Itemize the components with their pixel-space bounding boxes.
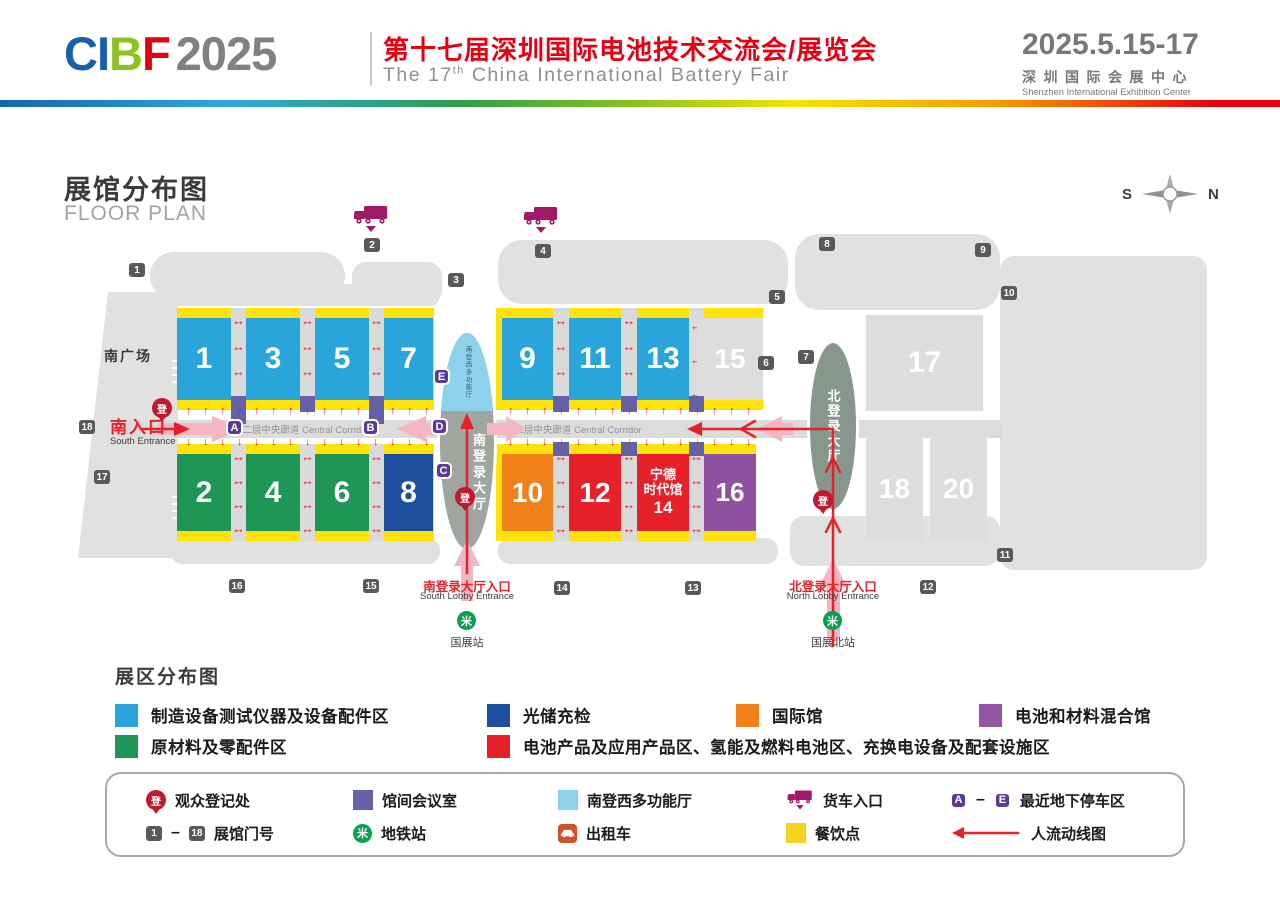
zone-swatch — [487, 735, 510, 758]
hall-number: 18 — [879, 473, 910, 505]
hall-number: 14 — [654, 498, 673, 518]
truck-entrance-icon — [523, 205, 559, 235]
fair-title-en-part: The 17 — [383, 64, 453, 86]
parking-badge-b: B — [362, 419, 379, 436]
logo-year: 2025 — [176, 27, 277, 80]
legend-dining: 餐饮点 — [786, 821, 860, 845]
venue-chinese: 深圳国际会展中心 — [1022, 67, 1214, 87]
gate-badge-9: 9 — [975, 243, 991, 257]
parking-letter: B — [367, 422, 375, 434]
legend-metro-station: 米 地铁站 — [353, 821, 426, 845]
dining-strip — [177, 308, 231, 318]
parking-letter: E — [438, 371, 445, 383]
legend-label: 人流动线图 — [1031, 823, 1106, 844]
gate-badge-18: 18 — [79, 420, 95, 434]
fair-title-english: The 17th China International Battery Fai… — [383, 64, 790, 87]
north-lobby-label: 北登录大厅 — [824, 389, 843, 464]
corridor-flow-arrow: ↑ — [593, 406, 599, 417]
legend-underground-parking: A – E 最近地下停车区 — [950, 788, 1125, 812]
corridor-flow-arrow: ↑ — [390, 406, 396, 417]
parking-letter: C — [440, 465, 448, 477]
corridor-flow-arrow: ↓ — [356, 437, 362, 448]
dining-strip — [637, 531, 689, 541]
plan-title-english: FLOOR PLAN — [64, 202, 207, 226]
corridor-flow-arrow: ↑ — [627, 406, 633, 417]
legend-truck-entrance: 货车入口 — [786, 788, 883, 812]
legend-gate-numbers: 1 – 18 展馆门号 — [146, 821, 274, 845]
hall-number: 10 — [512, 477, 543, 509]
hall-aisle: ↔↔↔↔ — [689, 444, 704, 541]
hall-6: 6 — [315, 454, 369, 531]
corridor-flow-arrow: ↓ — [746, 437, 752, 448]
legend-label: 南登西多功能厅 — [587, 790, 692, 811]
hall-14-name-line2: 时代馆 — [643, 483, 682, 498]
gate-badge-10: 10 — [1001, 286, 1017, 300]
parking-badge-a: A — [950, 792, 967, 809]
corridor-flow-arrow: ↑ — [729, 406, 735, 417]
compass-star-icon — [1138, 172, 1202, 216]
corridor-flow-arrow: ↓ — [695, 437, 701, 448]
hall-4: 4 — [246, 454, 300, 531]
corridor-flow-arrow: ↓ — [220, 437, 226, 448]
corridor-flow-arrow: ↓ — [729, 437, 735, 448]
parking-badge-e: E — [994, 792, 1011, 809]
corridor-flow-arrow: ↓ — [525, 437, 531, 448]
parking-badge-c: C — [435, 462, 452, 479]
legend-label: 最近地下停车区 — [1020, 790, 1125, 811]
parking-letter: D — [436, 421, 444, 433]
gate-badge-6: 6 — [758, 356, 774, 370]
zone-label: 光储充检 — [523, 703, 591, 727]
corridor-flow-arrow: ↑ — [678, 406, 684, 417]
registration-pin-icon: 登 — [813, 490, 833, 510]
registration-pin-icon: 登 — [146, 790, 166, 810]
hall-aisle: ↔↔↔↔ — [231, 444, 246, 541]
metro-glyph: 米 — [357, 825, 368, 841]
zone-swatch — [736, 704, 759, 727]
hall-number: 6 — [334, 476, 351, 510]
metro-station-icon: 米 — [353, 824, 372, 843]
corridor-flow-arrow: ↑ — [542, 406, 548, 417]
hall-17: 17 — [866, 315, 983, 411]
gate-badge-17: 17 — [94, 470, 110, 484]
legend-label: 观众登记处 — [175, 790, 250, 811]
corridor-flow-arrow: ↓ — [542, 437, 548, 448]
corridor-flow-arrow: ↓ — [322, 437, 328, 448]
hall-16: 16 — [704, 454, 756, 531]
zone-swatch — [115, 704, 138, 727]
corridor-flow-arrow: ↑ — [322, 406, 328, 417]
dining-strip — [637, 308, 689, 318]
dining-strip — [177, 531, 231, 541]
metro-glyph: 米 — [827, 613, 838, 629]
zone-legend-equipment: 制造设备测试仪器及设备配件区 — [115, 703, 389, 727]
corridor-flow-arrow: ↓ — [373, 437, 379, 448]
gate-badge-15: 15 — [363, 579, 379, 593]
venue-english: Shenzhen International Exhibition Center — [1022, 87, 1214, 97]
parking-letter: E — [999, 794, 1006, 806]
gate-badge-12: 12 — [920, 580, 936, 594]
corridor-flow-arrow: ↑ — [576, 406, 582, 417]
map-building-right — [1000, 256, 1207, 570]
compass-north-label: N — [1208, 186, 1219, 203]
metro-station-icon: 米 — [823, 611, 842, 630]
range-dash: – — [171, 824, 180, 842]
hall-number: 15 — [714, 343, 745, 375]
gate-badge-5: 5 — [769, 290, 785, 304]
legend-meeting-room: 馆间会议室 — [353, 788, 457, 812]
corridor-flow-arrow: ↓ — [271, 437, 277, 448]
corridor-flow-arrow: ↓ — [559, 437, 565, 448]
registration-glyph: 登 — [151, 793, 161, 808]
hall-11: 11 — [569, 318, 621, 400]
corridor-flow-arrow: ↑ — [695, 406, 701, 417]
gate-badge-16: 16 — [229, 579, 245, 593]
zone-legend-international: 国际馆 — [736, 703, 823, 727]
dining-strip — [502, 531, 553, 541]
hall-number: 2 — [196, 476, 213, 510]
hall-13: 13 — [637, 318, 689, 400]
south-entrance-label-cn: 南入口 — [110, 413, 167, 438]
corridor-flow-arrow: ↓ — [305, 437, 311, 448]
zone-label: 制造设备测试仪器及设备配件区 — [151, 703, 389, 727]
hall-7: 7 — [384, 318, 433, 400]
hall-aisle: ↔↔↔↔ — [300, 444, 315, 541]
corridor-flow-arrow: ↓ — [610, 437, 616, 448]
hall-10: 10 — [502, 454, 553, 531]
hall-aisle: ↔↔↔↔ — [621, 444, 637, 541]
gate-badge-2: 2 — [364, 238, 380, 252]
south-lobby-entrance-label-en: South Lobby Entrance — [420, 591, 514, 602]
corridor-flow-arrow: ↑ — [288, 406, 294, 417]
gate-badge-3: 3 — [448, 273, 464, 287]
hall-14-name-line1: 宁德 — [650, 468, 676, 483]
corridor-flow-arrow: ↑ — [271, 406, 277, 417]
hall-number: 7 — [400, 342, 417, 376]
hall-number: 9 — [519, 342, 536, 376]
registration-glyph: 登 — [460, 490, 470, 505]
hall-number: 3 — [265, 342, 282, 376]
hall-number: 1 — [196, 342, 213, 376]
taxi-icon — [558, 824, 577, 843]
hall-number: 5 — [334, 342, 351, 376]
corridor-flow-arrow: ↓ — [661, 437, 667, 448]
truck-entrance-icon — [353, 204, 389, 234]
corridor-flow-arrow: ↓ — [339, 437, 345, 448]
dining-swatch — [786, 823, 806, 843]
gate-badge-8: 8 — [819, 237, 835, 251]
hall-aisle: ↔↔↔↔ — [231, 308, 246, 410]
hall-aisle: ↔↔↔↔ — [621, 308, 637, 410]
corridor-flow-arrow: ↑ — [186, 406, 192, 417]
metro-station-south-label: 国展站 — [451, 634, 484, 650]
parking-badge-e: E — [433, 368, 450, 385]
hall-15: 15 — [697, 318, 763, 400]
hall-number: 11 — [579, 342, 611, 376]
corridor-flow-arrow: ↓ — [508, 437, 514, 448]
corridor-flow-arrow: ↑ — [305, 406, 311, 417]
dining-strip — [697, 308, 763, 318]
central-corridor-label: 二层中央廊道 Central Corridor — [514, 422, 641, 436]
corridor-flow-arrow: ↓ — [203, 437, 209, 448]
hall-number: 17 — [908, 346, 941, 380]
fair-title-en-sup: th — [453, 65, 465, 77]
legend-label: 地铁站 — [381, 823, 426, 844]
hall-2: 2 — [177, 454, 231, 531]
gate-badge-4: 4 — [535, 244, 551, 258]
logo-ci: CI — [64, 27, 109, 80]
dining-strip — [569, 531, 621, 541]
corridor-flow-arrow: ↓ — [644, 437, 650, 448]
truck-icon — [786, 789, 814, 811]
event-date-venue: 2025.5.15-17 深圳国际会展中心 Shenzhen Internati… — [1022, 28, 1214, 97]
corridor-flow-arrow: ↓ — [424, 437, 430, 448]
logo-b-battery-glyph: B — [109, 27, 142, 80]
corridor-flow-arrow: ↑ — [424, 406, 430, 417]
compass: S N — [1122, 172, 1219, 216]
legend-multifunction-hall: 南登西多功能厅 — [558, 788, 692, 812]
corridor-flow-arrow: ↑ — [661, 406, 667, 417]
zone-legend-battery-materials-mixed: 电池和材料混合馆 — [979, 703, 1151, 727]
legend-people-flow: 人流动线图 — [950, 821, 1106, 845]
zone-legend-solar-storage: 光储充检 — [487, 703, 591, 727]
gate-badge-18: 18 — [189, 826, 205, 841]
corridor-flow-arrow: ↓ — [390, 437, 396, 448]
dining-strip — [569, 308, 621, 318]
corridor-flow-arrow: ↑ — [237, 406, 243, 417]
hall-20: 20 — [930, 437, 987, 541]
south-lobby: 南登西多功能厅 南登录大厅 — [437, 330, 497, 552]
metro-station-north-label: 国展北站 — [811, 634, 855, 650]
rainbow-divider-bar — [0, 100, 1280, 107]
corridor-flow-arrow: ↑ — [525, 406, 531, 417]
fair-title-chinese: 第十七届深圳国际电池技术交流会/展览会 — [383, 30, 877, 67]
registration-pin-icon: 登 — [455, 487, 475, 507]
event-date: 2025.5.15-17 — [1022, 28, 1214, 62]
corridor-flow-arrow: ↑ — [508, 406, 514, 417]
dining-strip — [315, 531, 369, 541]
hall-3: 3 — [246, 318, 300, 400]
corridor-flow-arrow: ↑ — [712, 406, 718, 417]
hall-number: 13 — [646, 342, 679, 376]
hall-number: 8 — [400, 476, 417, 510]
hall-1: 1 — [177, 318, 231, 400]
map-background-shape — [498, 538, 778, 564]
corridor-flow-arrow: ↓ — [237, 437, 243, 448]
dining-strip — [315, 308, 369, 318]
corridor-flow-arrow: ↓ — [678, 437, 684, 448]
corridor-flow-arrow: ↑ — [407, 406, 413, 417]
metro-glyph: 米 — [461, 613, 472, 629]
hall-number: 20 — [943, 473, 974, 505]
south-plaza-label: 南广场 — [104, 346, 152, 366]
legend-label: 餐饮点 — [815, 823, 860, 844]
hall-aisle: ↔↔↔↔ — [553, 308, 569, 410]
hall-18: 18 — [866, 437, 923, 541]
fair-title-en-part2: China International Battery Fair — [465, 64, 790, 86]
cibf-logo: CIBF2025 — [64, 26, 276, 81]
zone-label: 电池产品及应用产品区、氢能及燃料电池区、充换电设备及配套设施区 — [523, 734, 1050, 758]
dining-strip — [704, 531, 756, 541]
hall-aisle: ↔↔↔↔ — [553, 444, 569, 541]
dining-strip — [502, 308, 553, 318]
gate-badge-14: 14 — [554, 581, 570, 595]
legend-label: 馆间会议室 — [382, 790, 457, 811]
metro-station-icon: 米 — [457, 611, 476, 630]
range-dash: – — [976, 791, 985, 809]
corridor-flow-arrow: ↑ — [644, 406, 650, 417]
meeting-room-swatch — [353, 790, 373, 810]
registration-glyph: 登 — [818, 493, 828, 508]
legend-label: 出租车 — [586, 823, 631, 844]
multifunction-hall-label: 南登西多功能厅 — [462, 346, 472, 399]
corridor-flow-arrow: ↓ — [593, 437, 599, 448]
map-background-shape — [170, 538, 440, 564]
corridor-flow-arrow: ↑ — [746, 406, 752, 417]
legend-registration: 登 观众登记处 — [146, 788, 250, 812]
floor-plan-page: CIBF2025 第十七届深圳国际电池技术交流会/展览会 The 17th Ch… — [0, 0, 1280, 904]
corridor-flow-arrow: ↓ — [254, 437, 260, 448]
dining-strip — [246, 308, 300, 318]
corridor-flow-arrow: ↓ — [712, 437, 718, 448]
corridor-flow-arrow: ↑ — [203, 406, 209, 417]
gate-badge-7: 7 — [798, 350, 814, 364]
multifunction-hall-swatch — [558, 790, 578, 810]
zone-swatch — [979, 704, 1002, 727]
hall-number: 12 — [579, 477, 610, 509]
zone-legend-raw-materials: 原材料及零配件区 — [115, 734, 287, 758]
gate-badge-13: 13 — [685, 581, 701, 595]
corridor-flow-arrow: ↑ — [339, 406, 345, 417]
hall-number: 4 — [265, 476, 282, 510]
corridor-flow-arrow: ↓ — [186, 437, 192, 448]
corridor-flow-arrow: ↓ — [288, 437, 294, 448]
hall-aisle: ↔↔↔↔ — [369, 308, 384, 410]
gate-number: 18 — [191, 828, 202, 839]
dining-strip — [246, 531, 300, 541]
hall-9: 9 — [502, 318, 553, 400]
flow-arrow-icon — [950, 825, 1022, 841]
parking-badge-d: D — [431, 418, 448, 435]
corridor-flow-arrow: ↑ — [559, 406, 565, 417]
legend-label: 货车入口 — [823, 790, 883, 811]
corridor-flow-arrow: ↑ — [254, 406, 260, 417]
hall-aisle: ↔↔↔↔ — [369, 444, 384, 541]
parking-letter: A — [231, 422, 239, 434]
gate-number: 1 — [151, 828, 157, 839]
gate-badge-11: 11 — [997, 548, 1013, 562]
zone-label: 国际馆 — [772, 703, 823, 727]
logo-f: F — [142, 27, 170, 80]
hall-aisle: ↔↔↔↔ — [300, 308, 315, 410]
hall-12: 12 — [569, 454, 621, 531]
header-divider — [370, 32, 372, 86]
hall-8: 8 — [384, 454, 433, 531]
corridor-flow-arrow: ↑ — [373, 406, 379, 417]
hall-number: 16 — [716, 477, 745, 508]
compass-south-label: S — [1122, 186, 1132, 203]
corridor-flow-arrow: ↓ — [407, 437, 413, 448]
corridor-flow-arrow: ↓ — [627, 437, 633, 448]
corridor-flow-arrow: ↑ — [610, 406, 616, 417]
legend-label: 展馆门号 — [214, 823, 274, 844]
south-entrance-label-en: South Entrance — [110, 436, 176, 447]
corridor-flow-arrow: ↑ — [356, 406, 362, 417]
zone-swatch — [115, 735, 138, 758]
zone-label: 原材料及零配件区 — [151, 734, 287, 758]
zone-legend-battery-products: 电池产品及应用产品区、氢能及燃料电池区、充换电设备及配套设施区 — [487, 734, 1050, 758]
parking-badge-a: A — [226, 419, 243, 436]
corridor-flow-arrow: ↓ — [576, 437, 582, 448]
zone-swatch — [487, 704, 510, 727]
zone-label: 电池和材料混合馆 — [1015, 703, 1151, 727]
legend-taxi: 出租车 — [558, 821, 631, 845]
parking-letter: A — [955, 794, 963, 806]
gate-badge-1: 1 — [129, 263, 145, 277]
gate-badge-1: 1 — [146, 826, 162, 841]
north-lobby-entrance-label-en: North Lobby Entrance — [787, 591, 879, 602]
hall-14-catl: 宁德 时代馆 14 — [637, 454, 689, 531]
map-background-shape — [160, 284, 440, 306]
zones-legend-title: 展区分布图 — [115, 662, 220, 689]
central-corridor-label: 二层中央廊道 Central Corridor — [242, 422, 369, 436]
north-lobby: 北登录大厅 — [807, 340, 859, 512]
corridor-flow-arrow: ↑ — [220, 406, 226, 417]
hall-5: 5 — [315, 318, 369, 400]
